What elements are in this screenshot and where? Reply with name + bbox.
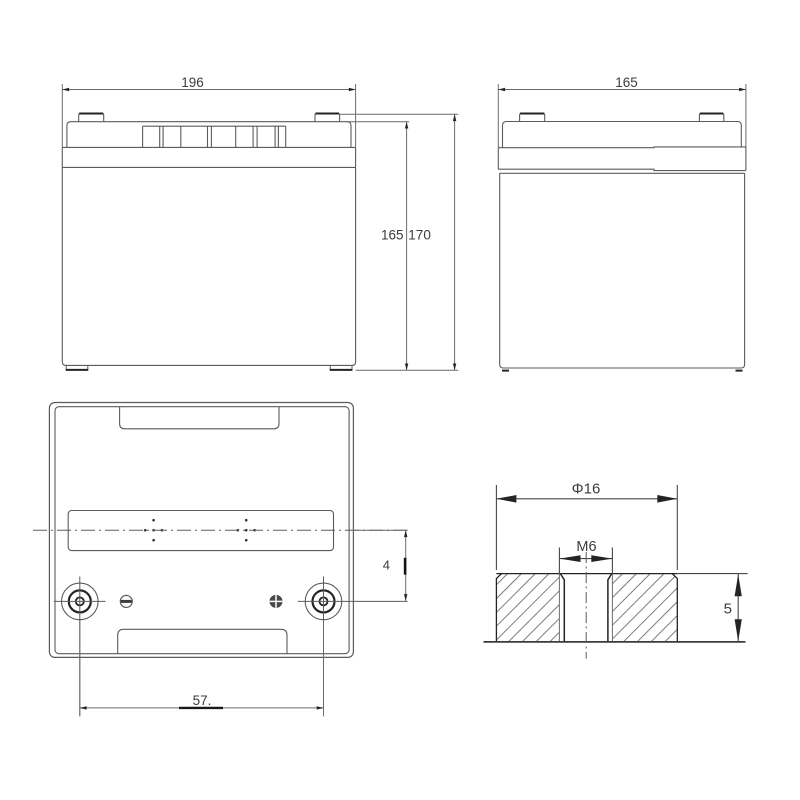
- svg-text:196: 196: [181, 75, 204, 90]
- svg-text:57.: 57.: [193, 693, 212, 708]
- svg-text:165: 165: [381, 228, 404, 243]
- svg-text:165: 165: [615, 75, 638, 90]
- svg-text:Φ16: Φ16: [572, 481, 601, 498]
- svg-text:M6: M6: [576, 539, 596, 555]
- svg-text:4: 4: [383, 558, 390, 573]
- svg-text:5: 5: [724, 601, 732, 618]
- svg-text:170: 170: [408, 228, 431, 243]
